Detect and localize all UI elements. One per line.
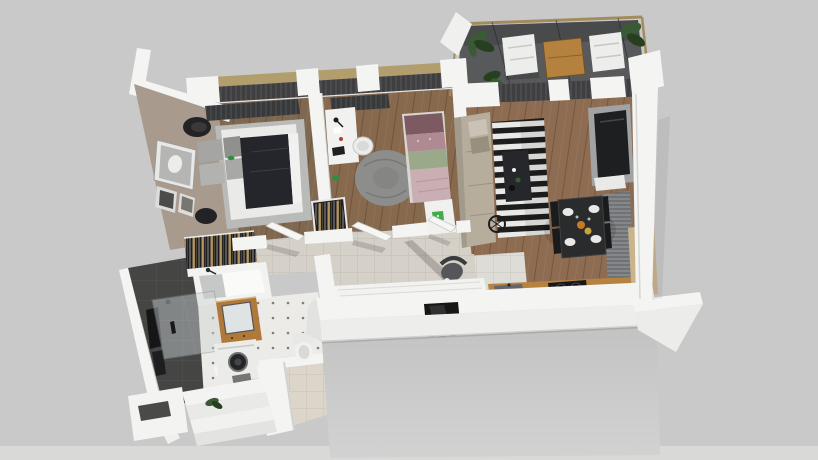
book-label (437, 215, 439, 217)
parrot-figurine (332, 176, 340, 181)
under-cut-shadow-plane (322, 326, 660, 458)
sofa-pillow (470, 136, 490, 154)
nightstand-stool (195, 208, 217, 224)
plate (563, 208, 574, 216)
desk (325, 107, 359, 165)
pillow-dot (429, 138, 431, 140)
washer-door-glass (235, 359, 242, 366)
wall-pier (590, 76, 626, 99)
wall-pier (356, 64, 380, 92)
desk-red-cup (339, 137, 343, 141)
pillow (223, 136, 242, 158)
plate (565, 238, 576, 246)
wall-pier (296, 68, 320, 96)
vanity-knob (231, 337, 233, 339)
pillow (197, 139, 223, 163)
desk-papers (333, 127, 342, 134)
bed-blanket (240, 134, 293, 209)
dining-area (544, 196, 616, 258)
armchair-cushion (191, 122, 207, 132)
bed-blanket-pink (410, 167, 451, 203)
table-plant (516, 178, 521, 183)
faucet (508, 284, 511, 287)
pillow-dot (417, 140, 419, 142)
mirror (222, 302, 254, 334)
sofa-pillow (468, 119, 488, 137)
food-dish-yellow (585, 228, 592, 235)
food-dish-orange (577, 221, 585, 229)
plate (589, 205, 600, 213)
front-wall (306, 282, 660, 458)
round-pouf-top (357, 141, 369, 151)
kettle (509, 185, 515, 191)
vanity-knob (243, 335, 245, 337)
glass (576, 216, 579, 219)
mug (512, 168, 516, 172)
coffee-table (502, 150, 532, 202)
pillow (225, 158, 244, 180)
glass (588, 218, 591, 221)
plate (591, 235, 602, 243)
balcony-lounge-chair-left (502, 34, 538, 76)
rug-center-shade (373, 167, 399, 189)
bed-sheet-green (408, 149, 448, 170)
floor-plan-render (0, 0, 818, 460)
balcony-lounge-chair-right (589, 32, 625, 72)
pillow (199, 162, 225, 186)
bed-pillow-pink (406, 132, 446, 152)
wall-pier (548, 79, 570, 101)
door-jamb-wall (456, 220, 471, 233)
parrot-figurine (228, 156, 235, 160)
bed-pillow-mauve (404, 113, 444, 135)
